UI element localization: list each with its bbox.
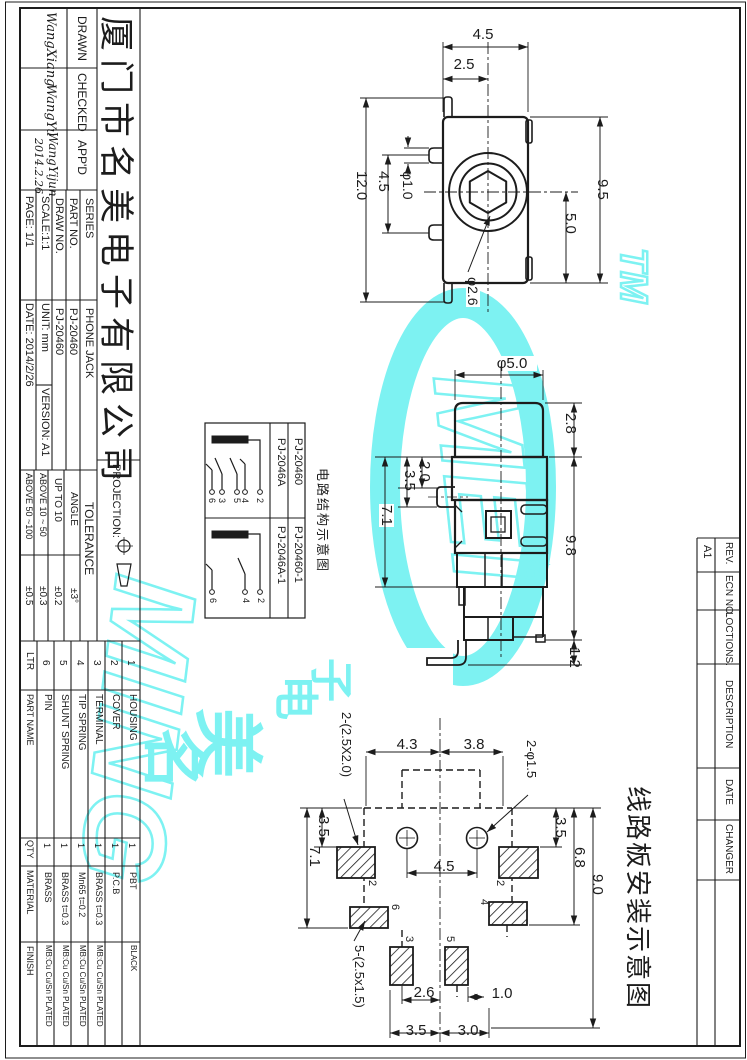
sheet-frame	[6, 2, 746, 1058]
front-view-geometry	[360, 42, 608, 312]
pcb-view-geometry	[298, 718, 601, 1042]
side-view-geometry	[375, 366, 582, 665]
revision-strip-grid	[697, 538, 740, 1046]
drawing-geometry	[0, 0, 747, 1060]
drawing-sheet: TM MING MEI ★ 名 美 电 子	[0, 0, 747, 1060]
bom-grid	[20, 641, 140, 1046]
projection-symbol	[115, 537, 133, 586]
schematic-diagrams	[205, 423, 305, 618]
